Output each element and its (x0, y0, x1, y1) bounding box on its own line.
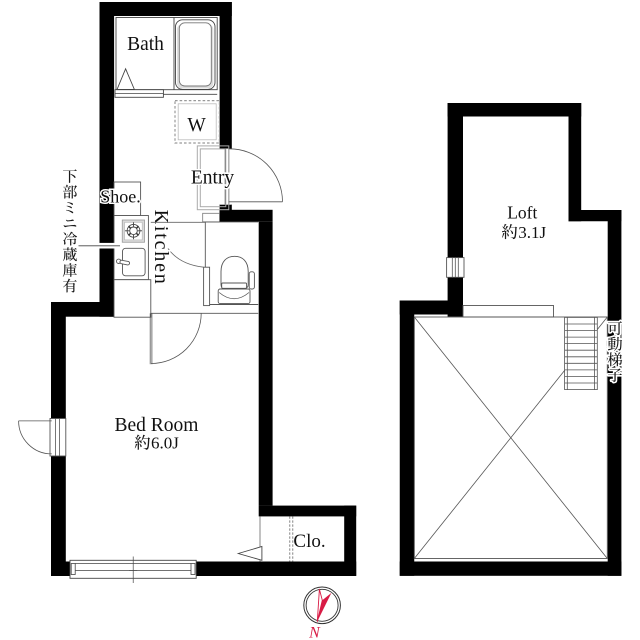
svg-text:Bath: Bath (127, 34, 164, 55)
svg-text:Shoe.: Shoe. (100, 187, 141, 207)
svg-text:6.0J: 6.0J (151, 434, 179, 453)
svg-text:N: N (308, 625, 321, 640)
svg-text:Entry: Entry (191, 168, 235, 189)
svg-text:W: W (187, 115, 206, 136)
svg-text:Loft: Loft (507, 203, 537, 223)
svg-text:Kitchen: Kitchen (150, 210, 172, 286)
svg-text:3.1J: 3.1J (518, 223, 546, 242)
svg-text:Clo.: Clo. (293, 531, 325, 552)
